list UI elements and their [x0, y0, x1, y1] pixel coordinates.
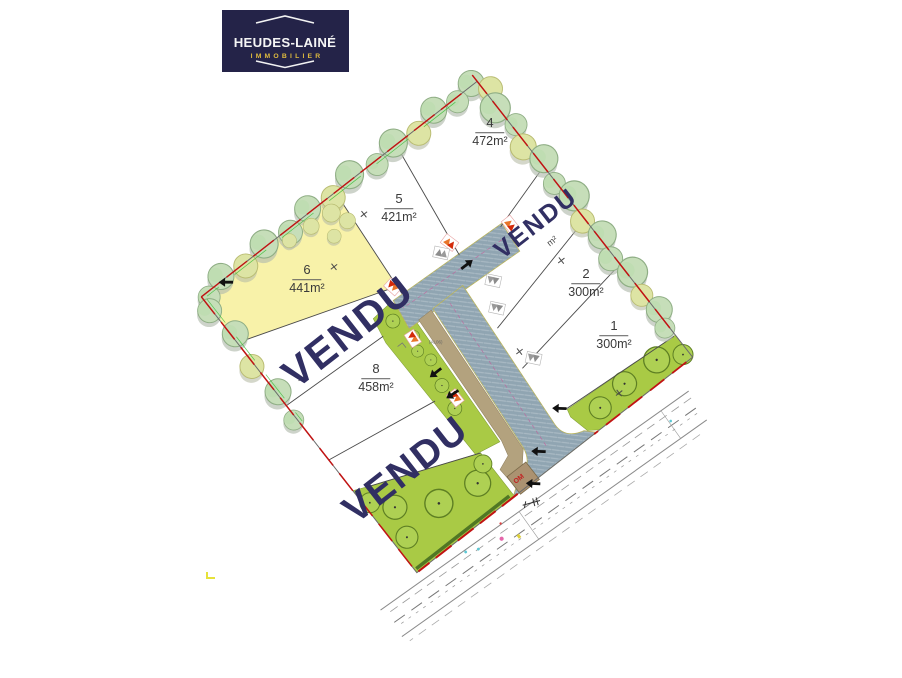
lot4-label: 4 472m² [472, 114, 507, 148]
lot6-area: 441m² [289, 280, 324, 295]
logo-title: HEUDES-LAINÉ [234, 35, 337, 50]
lot5-number: 5 [384, 192, 413, 209]
lot5-area: 421m² [381, 209, 416, 224]
parcel-ref-label: (AL06) [429, 339, 443, 344]
lot1-number: 1 [599, 319, 628, 336]
lot2-area: 300m² [568, 284, 603, 299]
lot4-area: 472m² [472, 133, 507, 148]
logo-roof-bottom-icon [256, 61, 314, 68]
lot2-number: 2 [571, 267, 600, 284]
lot5-label: 5 421m² [381, 190, 416, 224]
lot8-area: 458m² [358, 379, 393, 394]
lot8-number: 8 [361, 362, 390, 379]
lot4-number: 4 [475, 116, 504, 133]
lot6-label: 6 441m² [289, 261, 324, 295]
lot8-label: 8 458m² [358, 360, 393, 394]
page: HEUDES-LAINÉ IMMOBILIER [0, 0, 902, 678]
lot6-number: 6 [292, 263, 321, 280]
logo-subtitle: IMMOBILIER [251, 53, 324, 60]
pink-dot-icon [499, 536, 505, 542]
lot2-label: 2 300m² [568, 265, 603, 299]
yellow-corner-mark-icon [206, 572, 215, 579]
agency-logo: HEUDES-LAINÉ IMMOBILIER [222, 10, 349, 72]
lot1-label: 1 300m² [596, 317, 631, 351]
logo-roof-top-icon [256, 16, 314, 23]
lot1-area: 300m² [596, 336, 631, 351]
